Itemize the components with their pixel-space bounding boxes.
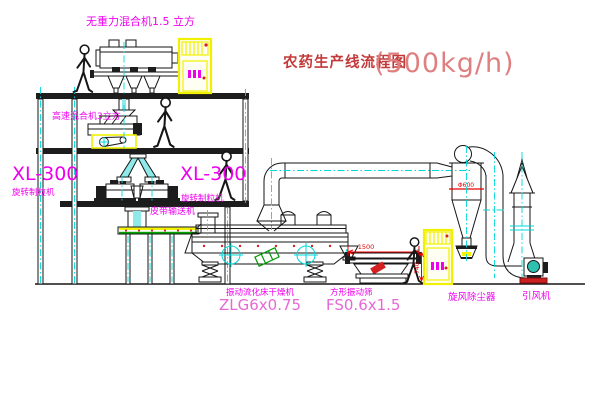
discharge-duct <box>125 207 149 227</box>
label-granulator-right-model: XL-300 <box>180 163 246 185</box>
induced-draft-fan <box>520 258 548 283</box>
label-screen-model: FS0.6x1.5 <box>326 296 400 314</box>
label-dryer-model: ZLG6x0.75 <box>219 296 301 314</box>
diagram-capacity: (500kg/h) <box>374 48 515 79</box>
person-figure <box>154 98 174 147</box>
label-granulator-left-name: 旋转制粒机 <box>12 187 55 198</box>
cabinet-marking <box>431 262 434 270</box>
control-cabinet-right <box>424 230 452 284</box>
dim-screen-length: 1500 <box>358 243 375 251</box>
label-fan: 引风机 <box>522 290 551 302</box>
dim-cyclone: Φ600 <box>458 182 474 189</box>
process-flow-drawing: 无重力混合机1.5 立方 农药生产线流程图 (500kg/h) 高速混合机3立方… <box>0 0 600 403</box>
flow-diagram-canvas: 无重力混合机1.5 立方 农药生产线流程图 (500kg/h) 高速混合机3立方… <box>0 0 600 403</box>
label-belt-conveyor: 皮带输送机 <box>150 205 195 217</box>
cabinet-marking <box>188 70 191 78</box>
label-zero-gravity-mixer: 无重力混合机1.5 立方 <box>86 14 195 28</box>
dryer-tag <box>255 248 279 266</box>
label-cyclone: 旋风除尘器 <box>448 291 496 303</box>
labels: 无重力混合机1.5 立方 农药生产线流程图 (500kg/h) 高速混合机3立方… <box>12 14 551 314</box>
zero-gravity-mixer <box>90 40 182 95</box>
label-granulator-left-model: XL-300 <box>12 163 78 185</box>
vibrating-screen <box>345 249 421 283</box>
person-figure <box>74 45 93 92</box>
dim-screen-height: 740 <box>414 262 421 274</box>
control-cabinet-top <box>179 39 211 93</box>
label-granulator-right-name: 旋转制粒机 <box>181 193 224 204</box>
label-high-speed-mixer: 高速混合机3立方 <box>52 110 121 122</box>
high-speed-mixer <box>88 99 142 148</box>
y-branch-pipe <box>117 154 159 182</box>
